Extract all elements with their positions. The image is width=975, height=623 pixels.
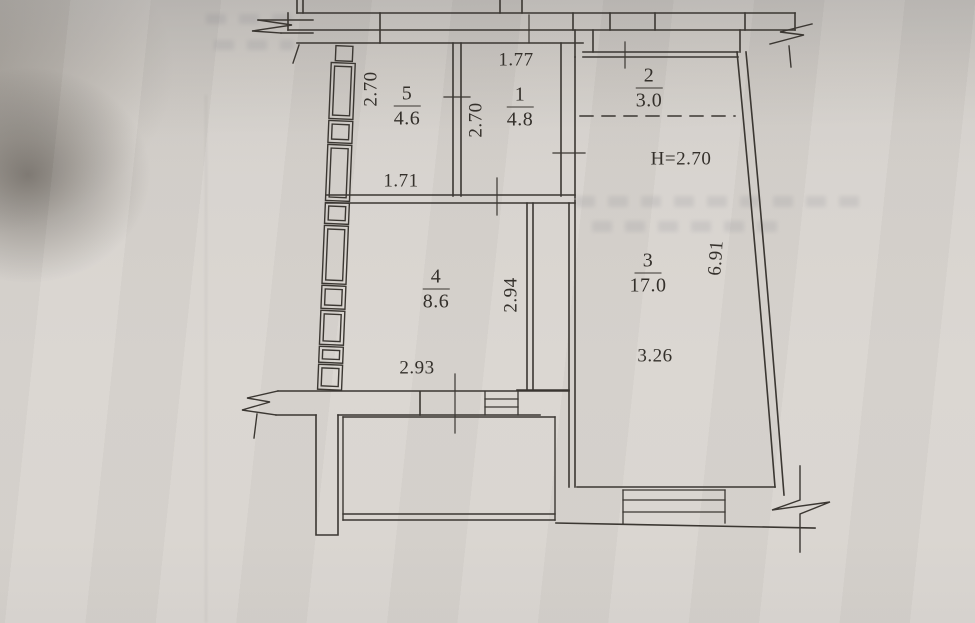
room-3-label: 3 17.0 bbox=[630, 251, 667, 296]
lower-left-wall bbox=[316, 415, 338, 535]
wall-break-top-left-icon bbox=[252, 20, 313, 63]
left-block-wall bbox=[318, 45, 356, 390]
dim-room3-inner: 3.26 bbox=[637, 347, 672, 366]
dim-room5-bottom: 1.71 bbox=[383, 172, 418, 191]
balcony-outline bbox=[343, 417, 555, 520]
room-4-number: 4 bbox=[423, 267, 450, 290]
room3-window-symbol bbox=[623, 490, 725, 523]
dim-room1-top: 1.77 bbox=[498, 51, 533, 70]
room-1-number: 1 bbox=[507, 85, 534, 108]
floorplan-svg bbox=[0, 0, 975, 623]
wall-room5-room1 bbox=[453, 43, 461, 196]
room-3-area: 17.0 bbox=[630, 274, 667, 296]
dim-room5-vertical: 2.70 bbox=[362, 71, 381, 106]
wall-rooms-51-room4 bbox=[326, 195, 575, 203]
room4-bottom-wall bbox=[276, 391, 569, 415]
room-5-label: 5 4.6 bbox=[394, 84, 421, 129]
room-3-number: 3 bbox=[635, 251, 662, 274]
hall-top-wall bbox=[583, 30, 740, 57]
room-2-area: 3.0 bbox=[636, 89, 663, 111]
room-4-area: 8.6 bbox=[423, 290, 450, 312]
dim-room3-vertical: 6.91 bbox=[705, 240, 726, 276]
curved-right-wall bbox=[737, 52, 784, 495]
dim-room4-bottom: 2.93 bbox=[399, 359, 434, 378]
wall-room4-room3-shaft bbox=[517, 200, 575, 487]
wall-room1-hall bbox=[561, 30, 593, 198]
dimension-ticks bbox=[444, 42, 625, 433]
room-1-area: 4.8 bbox=[507, 108, 534, 130]
ceiling-height-note: H=2.70 bbox=[651, 150, 712, 169]
balcony-door-window-symbol bbox=[485, 392, 518, 415]
wall-break-bottom-right-icon bbox=[772, 466, 830, 552]
room3-bottom-wall bbox=[556, 487, 815, 528]
top-wall bbox=[288, 0, 795, 43]
floorplan-photo: 5 4.6 1 4.8 2 3.0 3 17.0 4 8.6 1.77 1.71… bbox=[0, 0, 975, 623]
room-4-label: 4 8.6 bbox=[423, 267, 450, 312]
room-1-label: 1 4.8 bbox=[507, 85, 534, 130]
room-2-label: 2 3.0 bbox=[636, 66, 663, 111]
wall-break-bottom-left-icon bbox=[242, 391, 278, 438]
room-2-number: 2 bbox=[636, 66, 663, 89]
room-5-area: 4.6 bbox=[394, 107, 421, 129]
room-5-number: 5 bbox=[394, 84, 421, 107]
dim-room4-vertical: 2.94 bbox=[502, 277, 521, 312]
dim-room1-vertical: 2.70 bbox=[467, 102, 486, 137]
